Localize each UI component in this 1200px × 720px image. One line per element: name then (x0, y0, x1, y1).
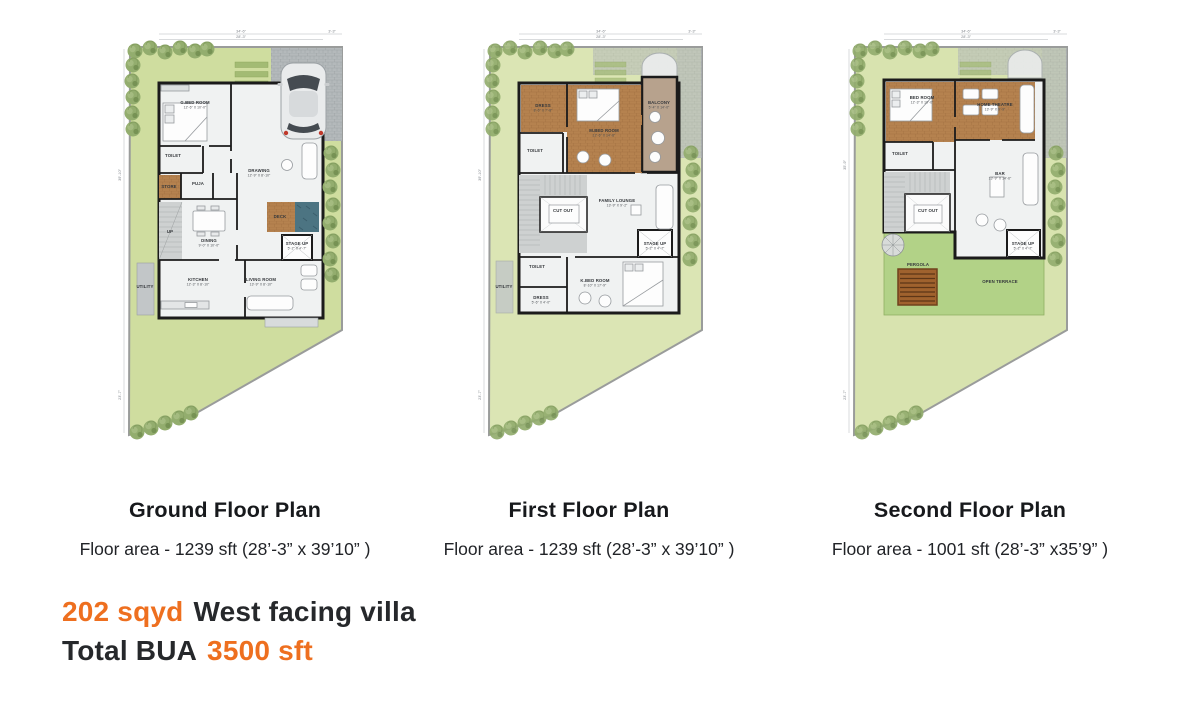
dimension-label: 28’-3” (596, 35, 606, 39)
dimension-label: 23’-7” (843, 389, 847, 399)
plan-area-text: Floor area - 1239 sft (28’-3” x 39’10” ) (419, 539, 759, 560)
room-label: STORE (161, 184, 176, 189)
room-label: UTILITY (495, 284, 512, 289)
room-label: STAGE UP5’-2” X 4’-7” (286, 241, 309, 250)
utility-pad (137, 263, 154, 315)
caption-second-floor: Second Floor Plan Floor area - 1001 sft … (800, 498, 1140, 560)
dimension-label: 39’-10” (118, 168, 122, 181)
car-icon (278, 63, 330, 139)
caption-first-floor: First Floor Plan Floor area - 1239 sft (… (419, 498, 759, 560)
plan-title: Second Floor Plan (800, 498, 1140, 523)
room-label: BALCONY5’-4” X 14’-0” (648, 100, 670, 109)
plan-title: First Floor Plan (419, 498, 759, 523)
plan-area-text: Floor area - 1001 sft (28’-3” x35’9” ) (800, 539, 1140, 560)
room-label: DRESS5’-6” X 4’-0” (532, 295, 551, 304)
room-label: TOILET (892, 151, 908, 156)
room-label: LIVING ROOM13’-9” X 8’-10” (246, 277, 277, 286)
dimension-label: 34’-6” (236, 30, 246, 34)
second-floor-plan-drawing: BED ROOM12’-3” X 10’-0”HOME THEATRE13’-9… (830, 5, 1130, 475)
summary-text: West facing villa (193, 596, 415, 627)
summary-text: Total BUA (62, 635, 197, 666)
room-label: PERGOLA (907, 262, 929, 267)
ground-floor-plan-drawing: G.BED ROOM12’-6” X 10’-0”TOILETSTOREPUJA… (105, 5, 405, 475)
room-label: STAGE UP5’-2” X 4’-7” (644, 241, 667, 250)
dimension-label: 39’-10” (478, 168, 482, 181)
room-label: TOILET (165, 153, 181, 158)
room-label: TOILET (529, 264, 545, 269)
room-label: STAGE UP5’-2” X 4’-7” (1012, 241, 1035, 250)
hedge-strips (595, 62, 626, 83)
ground-floor-plan-figure: G.BED ROOM12’-6” X 10’-0”TOILETSTOREPUJA… (105, 5, 405, 475)
dimension-label: 34’-6” (961, 30, 971, 34)
floor-plans-sheet: G.BED ROOM12’-6” X 10’-0”TOILETSTOREPUJA… (0, 0, 1200, 720)
summary-line-bua: Total BUA3500 sft (62, 631, 416, 670)
villa-summary-block: 202 sqydWest facing villa Total BUA3500 … (62, 592, 416, 670)
stairs (519, 175, 587, 253)
second-floor-plan-figure: BED ROOM12’-3” X 10’-0”HOME THEATRE13’-9… (830, 5, 1130, 475)
dimension-label: 35’-9” (843, 159, 847, 169)
entry-step (265, 318, 318, 327)
caption-ground-floor: Ground Floor Plan Floor area - 1239 sft … (55, 498, 395, 560)
room-label: UP (167, 229, 173, 234)
first-floor-plan-figure: DRESS8’-6” X 7’-8”TOILETM.BED ROOM12’-6”… (465, 5, 765, 475)
room-label: UTILITY (136, 284, 153, 289)
room-label: CUT OUT (918, 208, 938, 213)
room-label: TOILET (527, 148, 543, 153)
room-label: CUT OUT (553, 208, 573, 213)
dimension-label: 3’-3” (688, 30, 696, 34)
room-label: BED ROOM12’-3” X 10’-0” (910, 95, 935, 104)
paver-strip-right (677, 48, 702, 158)
dimension-label: 34’-6” (596, 30, 606, 34)
car-roof-faded (642, 53, 677, 77)
plan-area-text: Floor area - 1239 sft (28’-3” x 39’10” ) (55, 539, 395, 560)
summary-line-plot: 202 sqydWest facing villa (62, 592, 416, 631)
dimension-label: 23’-7” (478, 389, 482, 399)
room-label: G.BED ROOM12’-6” X 10’-0” (180, 100, 210, 109)
dimension-label: 3’-3” (1053, 30, 1061, 34)
room-label: KITCHEN12’-3” X 8’-10” (187, 277, 210, 286)
pergola (898, 269, 937, 305)
dimension-label: 28’-3” (961, 35, 971, 39)
paver-strip-right (1042, 48, 1067, 158)
room-label: OPEN TERRACE (982, 279, 1018, 284)
room-label: DRESS8’-6” X 7’-8” (534, 103, 553, 112)
plan-title: Ground Floor Plan (55, 498, 395, 523)
room-label: DRAWING12’-9” X 8’-10” (248, 168, 271, 177)
summary-highlight-value: 3500 sft (207, 635, 313, 666)
room-label: M.BED ROOM12’-6” X 14’-6” (589, 128, 619, 137)
room-label: DINING9’-0” X 10’-0” (199, 238, 220, 247)
room-label: PUJA (192, 181, 204, 186)
dimension-label: 28’-3” (236, 35, 246, 39)
car-roof-faded (1008, 50, 1042, 78)
stairs (884, 172, 950, 232)
spiral-stair (882, 234, 904, 256)
dimension-label: 23’-7” (118, 389, 122, 399)
room-label: K.BED ROOM8’-10” X 17’-9” (580, 278, 609, 287)
dimension-label: 3’-3” (328, 30, 336, 34)
summary-highlight-value: 202 sqyd (62, 596, 183, 627)
first-floor-plan-drawing: DRESS8’-6” X 7’-8”TOILETM.BED ROOM12’-6”… (465, 5, 765, 475)
room-label: DECK (274, 214, 287, 219)
